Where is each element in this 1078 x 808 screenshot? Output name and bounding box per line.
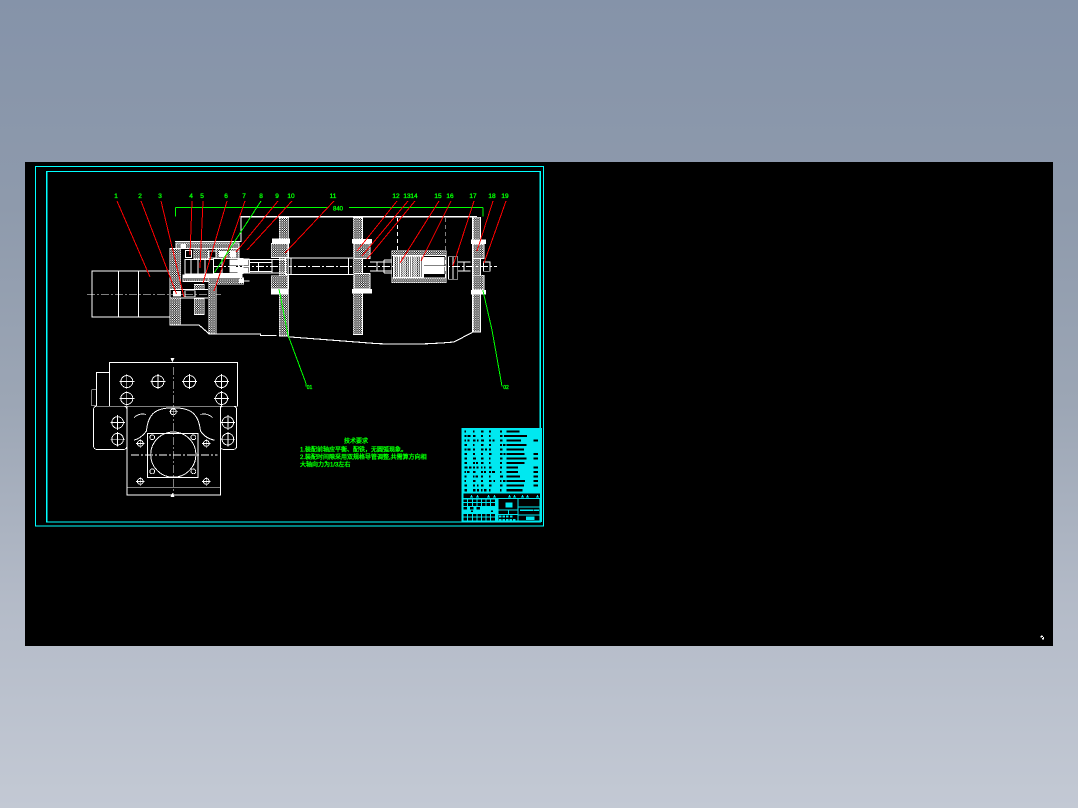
svg-text:18: 18 xyxy=(488,193,496,200)
svg-text:10: 10 xyxy=(287,193,295,200)
svg-text:02: 02 xyxy=(503,385,509,391)
svg-text:5: 5 xyxy=(200,193,204,200)
svg-text:16: 16 xyxy=(446,193,454,200)
svg-text:11: 11 xyxy=(330,193,337,200)
svg-text:7: 7 xyxy=(242,193,246,200)
svg-text:6: 6 xyxy=(224,193,228,200)
svg-text:01: 01 xyxy=(307,385,313,391)
svg-text:技术要求: 技术要求 xyxy=(344,437,368,445)
svg-text:1: 1 xyxy=(114,193,118,200)
svg-text:1.装配前轴应平衡、配铁，无圆弧现象。: 1.装配前轴应平衡、配铁，无圆弧现象。 xyxy=(300,446,407,454)
svg-text:2.装配时间隙采用双规格导管调整,共需算方向相: 2.装配时间隙采用双规格导管调整,共需算方向相 xyxy=(300,453,427,461)
svg-text:12: 12 xyxy=(392,193,400,200)
svg-text:4: 4 xyxy=(189,193,193,200)
svg-text:14: 14 xyxy=(410,193,418,200)
svg-text:3: 3 xyxy=(158,193,162,200)
svg-text:15: 15 xyxy=(434,193,442,200)
svg-text:大轴向力为1/3左右: 大轴向力为1/3左右 xyxy=(300,461,350,469)
svg-text:840: 840 xyxy=(333,206,344,212)
svg-text:17: 17 xyxy=(469,193,477,200)
svg-text:2: 2 xyxy=(138,193,142,200)
svg-text:9: 9 xyxy=(275,193,279,200)
svg-text:19: 19 xyxy=(501,193,509,200)
svg-text:8: 8 xyxy=(259,193,263,200)
